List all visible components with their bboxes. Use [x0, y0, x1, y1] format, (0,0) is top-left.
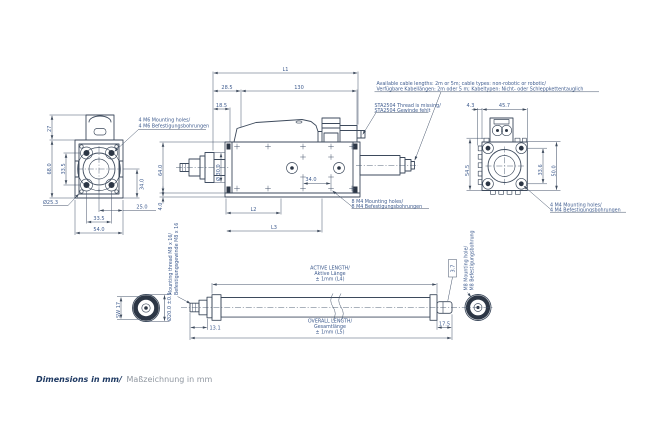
- tube-left-end-view: [133, 295, 160, 322]
- tube-m8-label-en: M8 Mounting hole/: [464, 246, 470, 291]
- dim-front-motor-height: 27: [47, 126, 53, 132]
- cable-note-de: Verfügbare Kabellängen: 2m oder 5 m; Kab…: [377, 87, 584, 93]
- drawing-title-de: Maßzeichnung in mm: [126, 375, 212, 384]
- rear-fins: [478, 138, 526, 194]
- cable-note-en: Available cable lengths: 2m or 5m; cable…: [377, 81, 547, 87]
- front-view: 27 68.0 33.5 34.0 25.0 33.5 54.0 Ø25.3 4…: [43, 115, 209, 235]
- dim-rear-width: 45.7: [499, 103, 510, 109]
- tube-view: SW 17 Ø20.0 ±0.1 13.1 17.5 3.7 Mounting …: [116, 223, 494, 340]
- side-cover-slot: [296, 121, 302, 123]
- dim-rear-height: 54.5: [465, 165, 471, 176]
- sta-note-de: STA2504 Gewinde fehlt: [375, 108, 431, 114]
- rear-m4-label-de: 4 M4 Befestigungsbohrungen: [550, 207, 621, 213]
- rear-m4-leader: [524, 186, 551, 209]
- dim-front-offset: 25.0: [136, 205, 147, 211]
- tube-m8-label-de: M8 Befestigungsbohrung: [470, 230, 476, 290]
- dim-tube-end: 17.5: [439, 322, 450, 328]
- front-extension-lines: [43, 115, 206, 235]
- tube-overall-label-en: OVERALL LENGTH/: [308, 319, 353, 325]
- rear-motor-slot: [494, 120, 509, 125]
- dim-side-flange-len: 18.5: [216, 103, 227, 109]
- front-m6-label-de: 4 M6 Befestigungsbohrungen: [139, 124, 210, 130]
- tube-thread-label-en: Mounting thread M8 x 16/: [168, 233, 174, 295]
- dim-tube-tip: 13.1: [210, 326, 221, 332]
- side-sta-leader: [363, 113, 376, 135]
- tube-m8-leader: [468, 293, 472, 298]
- dim-front-side: 34.0: [140, 179, 146, 190]
- drawing-title-en: Dimensions in mm/: [36, 375, 123, 384]
- dim-side-front-len: 28.5: [221, 85, 232, 91]
- dim-tube-dia: Ø20.0 ±0.1: [166, 292, 173, 321]
- dim-side-l3: L3: [271, 225, 277, 231]
- dim-front-height: 68.0: [47, 163, 53, 174]
- side-holes: [287, 163, 345, 174]
- front-m6-label-en: 4 M6 Mounting holes/: [139, 118, 191, 124]
- dim-side-hole-spacing: 34.0: [305, 177, 316, 183]
- dim-rear-hole-spacing: 33.6: [538, 164, 544, 175]
- dim-side-overall: L1: [283, 67, 289, 73]
- dim-tube-end-dia: 3.7: [450, 265, 456, 273]
- tube-end-dia-leader: [448, 277, 453, 301]
- side-body-outline: [225, 118, 365, 197]
- side-m4-label-de: 8 M4 Befestigungsbohrungen: [352, 204, 423, 210]
- dim-rear-fin: 4.3: [467, 103, 475, 109]
- dim-side-rod-dia: Ø 30.0: [215, 164, 222, 181]
- side-mounting-crosses: [234, 144, 355, 192]
- technical-drawing: 27 68.0 33.5 34.0 25.0 33.5 54.0 Ø25.3 4…: [0, 0, 650, 439]
- dim-front-holes-h: 33.5: [93, 216, 104, 222]
- front-bore-leader: [68, 194, 79, 206]
- dim-side-plate: 4.0: [158, 203, 164, 211]
- dim-front-holes-v: 33.5: [61, 163, 67, 174]
- tube-active-label-tol: ± 1mm (L4): [316, 277, 345, 283]
- drawing-title: Dimensions in mm/ Maßzeichnung in mm: [36, 375, 213, 384]
- tube-thread-leader: [178, 297, 191, 304]
- dim-front-width: 54.0: [93, 227, 104, 233]
- tube-active-label-en: ACTIVE LENGTH/: [310, 266, 350, 272]
- side-view: L1 28.5 130 18.5 64.0 Ø 30.0 4.0 L2 L3 3…: [158, 67, 599, 232]
- dim-side-body-len: 130: [294, 85, 304, 91]
- tube-thread-label-de: Befestigungsgewinde M8 x 16: [174, 223, 180, 295]
- front-m6-leader: [115, 130, 139, 152]
- side-cable-leader: [415, 92, 441, 160]
- dim-side-l2: L2: [251, 207, 257, 213]
- tube-body: [190, 294, 452, 321]
- dim-rear-outer: 50.0: [552, 165, 558, 176]
- front-motor-pill: [94, 129, 106, 136]
- dim-front-bore: Ø25.3: [43, 199, 58, 206]
- rear-view: 4.3 45.7 54.5 33.6 50.0 4 M4 Mounting ho…: [465, 103, 626, 213]
- dim-side-height: 64.0: [158, 165, 164, 176]
- drawing-page: 27 68.0 33.5 34.0 25.0 33.5 54.0 Ø25.3 4…: [0, 0, 650, 439]
- front-outline: [75, 115, 123, 198]
- dim-tube-wrench: SW 17: [116, 302, 122, 318]
- rear-gears: [492, 125, 511, 135]
- tube-overall-label-de: Gesamtlänge: [314, 324, 346, 330]
- tube-overall-label-tol: ± 1mm (L5): [316, 330, 345, 336]
- tube-active-label-de: Aktive Länge: [314, 271, 345, 277]
